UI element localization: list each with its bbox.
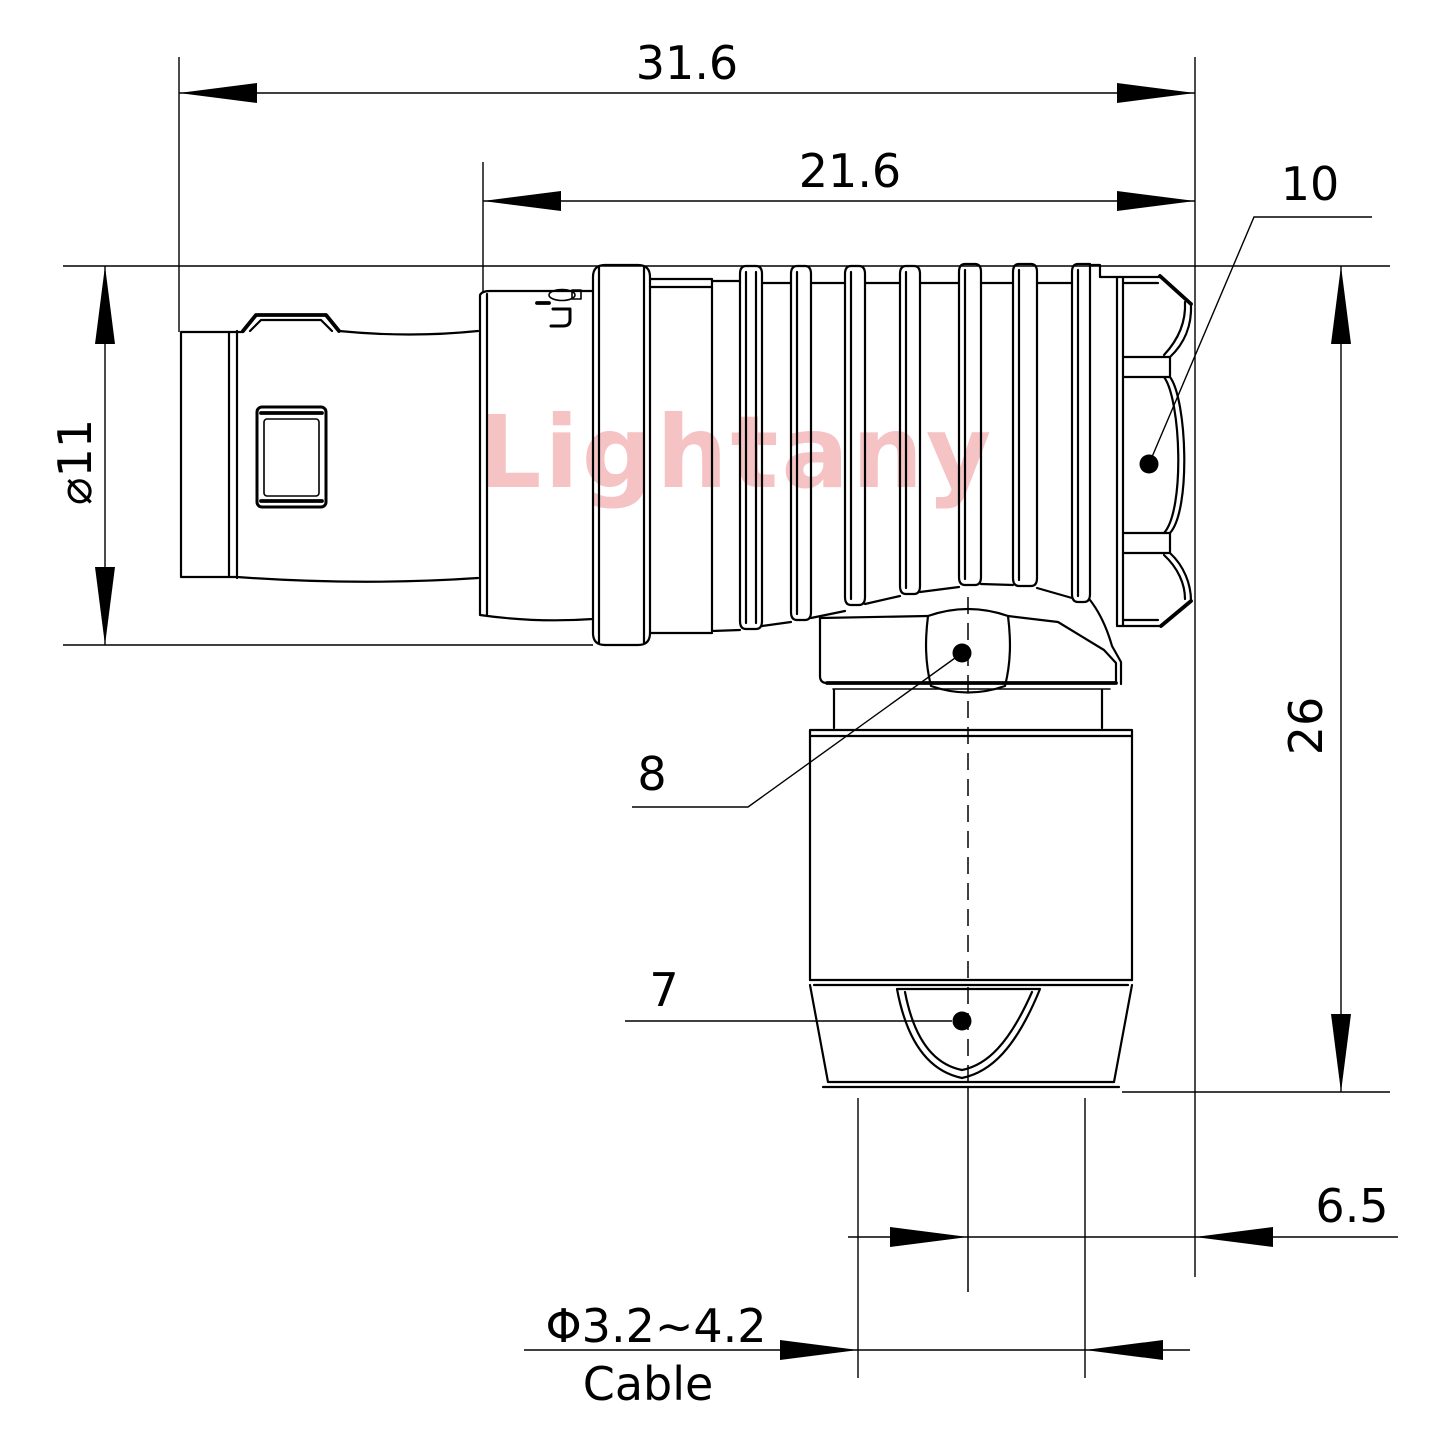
- cable-housing-body: [810, 730, 1132, 985]
- dim-housing-length: 21.6: [483, 144, 1195, 211]
- dim-label-overall-length: 31.6: [636, 36, 738, 90]
- dim-label-elbow-height: 26: [1279, 697, 1333, 756]
- leader-dot-clamp-nut: [953, 644, 972, 663]
- connector-side-view: [181, 264, 1191, 1087]
- rib-valleys-bottom: [712, 584, 1072, 631]
- extension-lines: [63, 57, 1390, 1378]
- dim-shell-diameter: ⌀11: [48, 266, 115, 645]
- callout-clamp-nut: 8: [632, 644, 972, 808]
- latch-mechanism-detail: [537, 290, 581, 327]
- dim-cable-axis-offset: 6.5: [848, 1179, 1398, 1247]
- drawing-page: Lightany: [0, 0, 1440, 1440]
- callout-label-strain-relief: 7: [649, 963, 678, 1017]
- dim-label-housing-length: 21.6: [799, 144, 901, 198]
- dim-cable-range: Φ3.2~4.2 Cable: [524, 1299, 1190, 1411]
- leader-dot-strain-relief: [953, 1012, 972, 1031]
- callout-label-coupling-nut: 10: [1281, 157, 1340, 211]
- latch-bump-inner: [250, 320, 332, 331]
- dim-label-cable-caption: Cable: [583, 1357, 714, 1411]
- dim-elbow-height: 26: [1279, 266, 1351, 1092]
- rear-cap: [181, 331, 243, 578]
- watermark-text: Lightany: [478, 394, 994, 511]
- dim-label-cable-axis-offset: 6.5: [1315, 1179, 1388, 1233]
- dim-label-shell-diameter: ⌀11: [48, 419, 102, 505]
- technical-drawing: Lightany: [0, 0, 1440, 1440]
- leader-dot-coupling-nut: [1140, 455, 1159, 474]
- dim-label-cable-range: Φ3.2~4.2: [545, 1299, 766, 1353]
- callout-strain-relief: 7: [625, 963, 972, 1031]
- latch-window: [257, 407, 326, 507]
- dim-overall-length: 31.6: [179, 36, 1195, 103]
- callout-label-clamp-nut: 8: [637, 747, 666, 801]
- rear-shell: [237, 331, 478, 582]
- strain-relief-cone: [810, 985, 1132, 1087]
